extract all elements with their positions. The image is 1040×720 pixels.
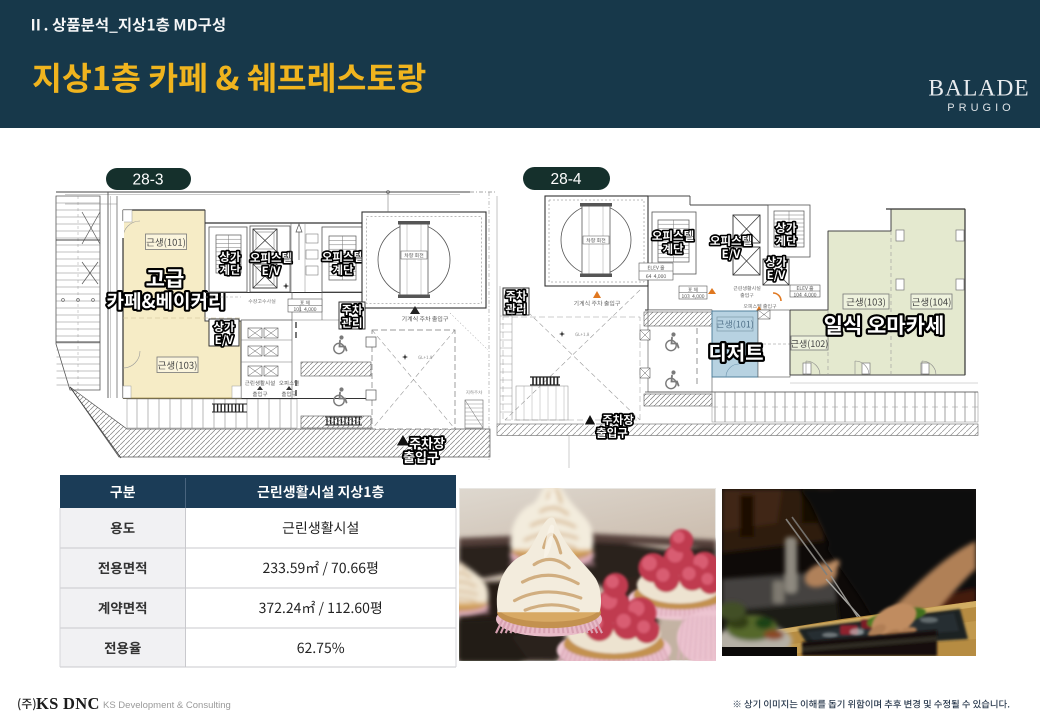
svg-text:PRUGIO: PRUGIO	[947, 102, 1014, 114]
svg-text:KS DNC: KS DNC	[36, 694, 100, 713]
svg-text:28-4: 28-4	[550, 171, 581, 188]
svg-text:BALADE: BALADE	[928, 76, 1029, 102]
svg-text:28-3: 28-3	[132, 172, 163, 189]
svg-text:KS Development & Consulting: KS Development & Consulting	[103, 700, 231, 711]
